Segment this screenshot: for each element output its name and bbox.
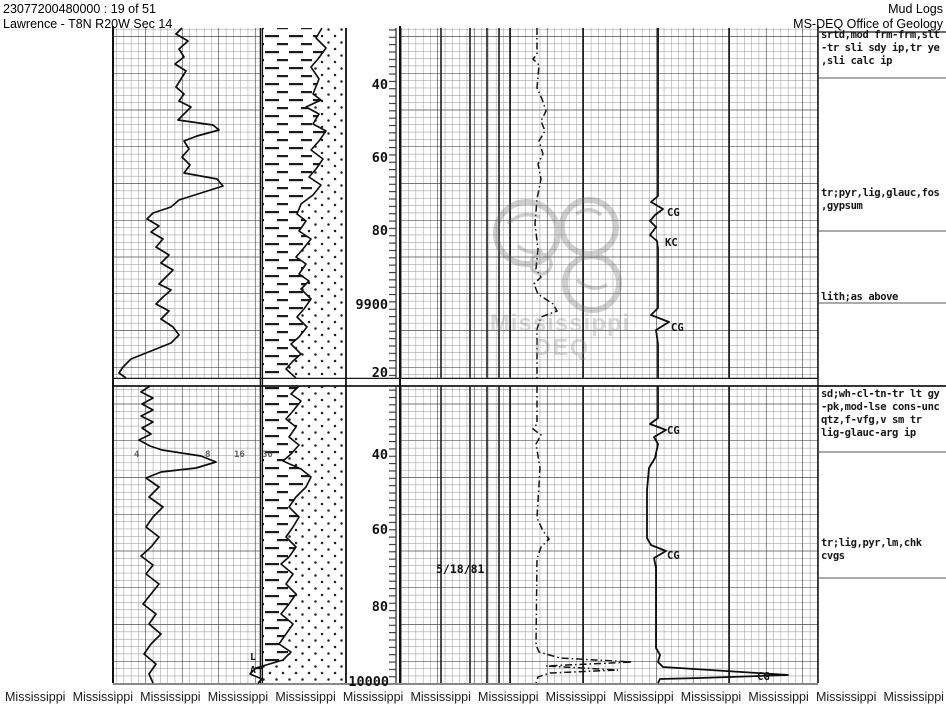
depth-label: 40 xyxy=(372,77,388,93)
rop-track xyxy=(113,28,260,683)
footer-watermark-item: Mississippi xyxy=(343,690,403,704)
gas-track xyxy=(400,28,818,683)
depth-scale xyxy=(389,28,396,683)
annotation-lithology-5: tr;lig,pyr,lm,chk cvgs xyxy=(821,537,945,563)
footer-watermark-item: Mississippi xyxy=(5,690,65,704)
footer-watermark-row: MississippiMississippiMississippiMississ… xyxy=(0,690,946,704)
footer-watermark-item: Mississippi xyxy=(748,690,808,704)
scale-number: 4 xyxy=(134,450,140,460)
scale-number: 8 xyxy=(205,450,210,460)
footer-watermark-item: Mississippi xyxy=(613,690,673,704)
scale-number: 30 xyxy=(262,450,273,460)
annotation-lithology-4: sd;wh-cl-tn-tr lt gy -pk,mod-lse cons-un… xyxy=(821,388,945,440)
lithology-column xyxy=(250,28,346,683)
gas-show-label-kc: KC xyxy=(665,237,678,249)
depth-label: 40 xyxy=(372,447,388,463)
footer-watermark-item: Mississippi xyxy=(275,690,335,704)
footer-watermark-item: Mississippi xyxy=(816,690,876,704)
mud-log-chart: 40 60 80 9900 20 40 60 80 10000 CG KC CG… xyxy=(0,0,946,705)
mud-log-page: 23077200480000 : 19 of 51 Lawrence - T8N… xyxy=(0,0,946,705)
footer-watermark-item: Mississippi xyxy=(410,690,470,704)
depth-label: 10000 xyxy=(348,674,389,690)
gas-show-label-cg: CG xyxy=(757,671,770,683)
annotation-lithology-2: tr;pyr,lig,glauc,fos ,gypsum xyxy=(821,187,945,213)
footer-watermark-item: Mississippi xyxy=(681,690,741,704)
watermark-text-1: Mississippi xyxy=(490,310,630,337)
litho-mark: A xyxy=(250,665,256,676)
watermark-text-2: DEQ xyxy=(534,334,590,360)
gas-show-label-cg: CG xyxy=(671,322,684,334)
annotation-lithology-3: lith;as above xyxy=(821,291,945,304)
footer-watermark-item: Mississippi xyxy=(140,690,200,704)
footer-watermark-item: Mississippi xyxy=(546,690,606,704)
gas-show-label-cg: CG xyxy=(667,550,680,562)
depth-label: 9900 xyxy=(355,297,388,313)
annotation-lithology-1: srtd,mod frm-frm,slt -tr sli sdy ip,tr y… xyxy=(821,29,945,68)
gas-show-label-cg: CG xyxy=(667,425,680,437)
depth-label: 80 xyxy=(372,223,388,239)
scale-number: 16 xyxy=(234,450,245,460)
litho-mark: L xyxy=(250,652,256,663)
footer-watermark-item: Mississippi xyxy=(73,690,133,704)
date-note: 5/18/81 xyxy=(436,562,485,576)
depth-label: 20 xyxy=(372,365,388,381)
depth-label: 60 xyxy=(372,522,388,538)
footer-watermark-item: Mississippi xyxy=(478,690,538,704)
depth-label: 80 xyxy=(372,599,388,615)
gas-show-label-cg: CG xyxy=(667,207,680,219)
annotation-rules xyxy=(818,32,946,578)
depth-label: 60 xyxy=(372,150,388,166)
footer-watermark-item: Mississippi xyxy=(208,690,268,704)
footer-watermark-item: Mississippi xyxy=(884,690,944,704)
